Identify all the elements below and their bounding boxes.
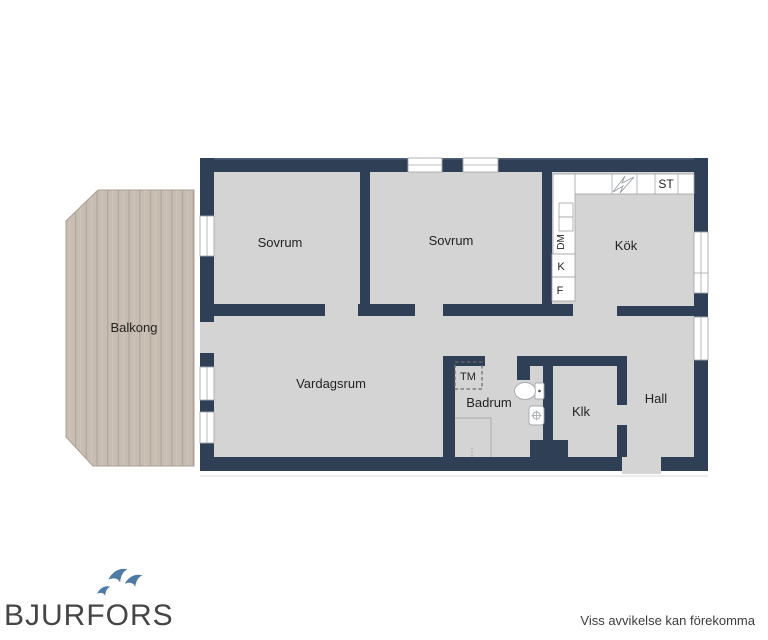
label-fridge: K (557, 261, 565, 273)
logo-text: BJURFORS (4, 599, 174, 632)
plan-shadow (200, 475, 708, 477)
birds-icon (96, 568, 143, 597)
label-storage-closet: ST (658, 177, 674, 191)
room-label-sovrum-2: Sovrum (429, 233, 474, 248)
balcony-door-opening (200, 322, 214, 353)
window-right-hall (694, 317, 708, 360)
kitchen-sink-icon (559, 203, 573, 217)
disclaimer-text: Viss avvikelse kan förekomma (580, 613, 755, 628)
floor-plan-drawing: Sovrum Sovrum Kök Balkong Vardagsrum Bad… (0, 0, 768, 640)
room-label-sovrum-1: Sovrum (258, 235, 303, 250)
freezer-box (552, 277, 575, 301)
toilet-icon (515, 383, 545, 400)
room-label-hall: Hall (645, 391, 668, 406)
window-left-bedroom (200, 216, 214, 256)
window-left-living-1 (200, 367, 214, 400)
label-freezer: F (557, 285, 564, 297)
room-label-klk: Klk (572, 404, 591, 419)
room-label-kok: Kök (615, 238, 638, 253)
floor-plan-page: Sovrum Sovrum Kök Balkong Vardagsrum Bad… (0, 0, 768, 640)
room-label-balkong: Balkong (111, 320, 158, 335)
window-top-bedroom-2 (463, 158, 498, 172)
label-dishwasher: DM (556, 234, 567, 250)
brand-logo: BJURFORS (4, 568, 174, 632)
label-washing-machine: TM (460, 371, 476, 383)
sink-icon (529, 406, 544, 425)
kitchen-sink-icon-2 (559, 217, 573, 231)
window-left-living-2 (200, 412, 214, 443)
room-label-vardagsrum: Vardagsrum (296, 376, 366, 391)
window-right-kitchen (694, 232, 708, 293)
window-top-bedroom-1 (408, 158, 442, 172)
room-label-badrum: Badrum (466, 395, 512, 410)
entry-opening (622, 457, 661, 474)
